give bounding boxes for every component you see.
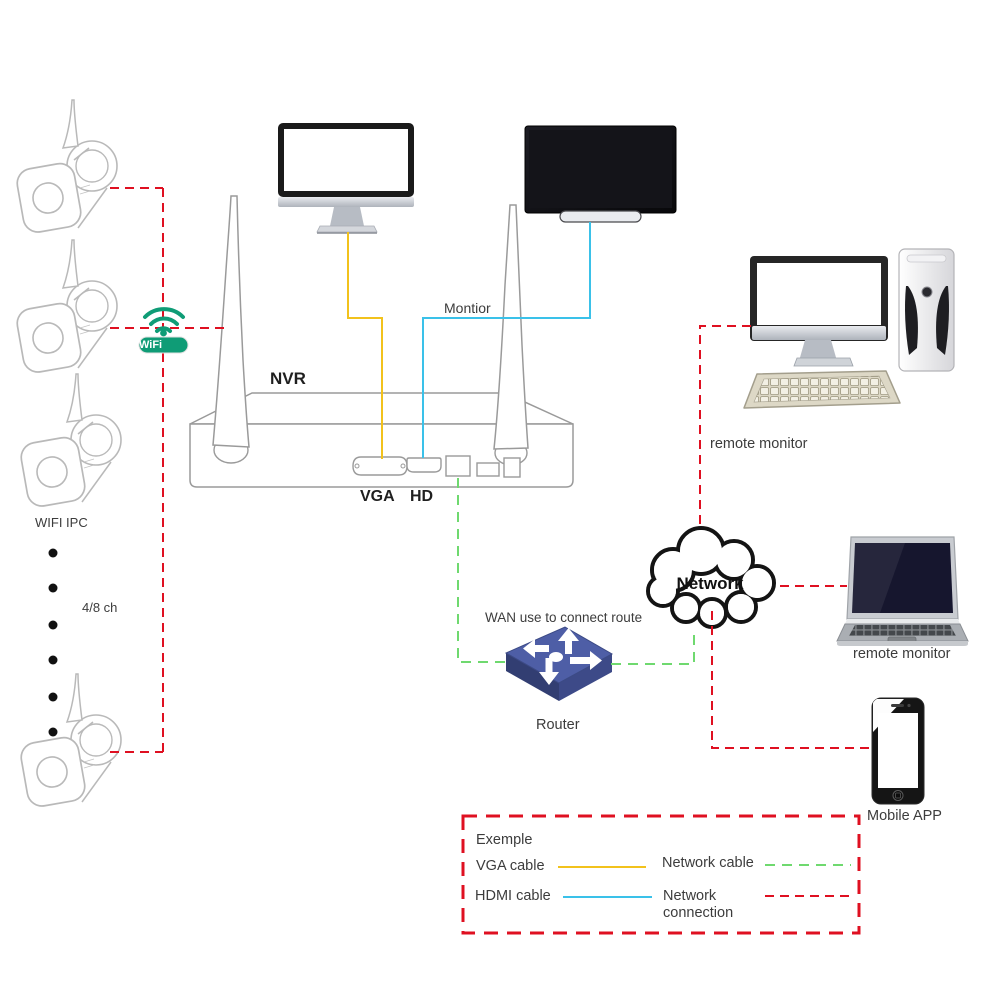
hd-port-label: HD <box>410 488 433 506</box>
remote-monitor-laptop-label: remote monitor <box>853 646 951 663</box>
network-cloud-label: Network <box>668 574 752 594</box>
mobile-app-label: Mobile APP <box>867 808 942 825</box>
channels-label: 4/8 ch <box>82 601 117 616</box>
nvr-label: NVR <box>270 369 306 389</box>
wifi-ipc-label: WIFI IPC <box>35 516 88 531</box>
router-label: Router <box>536 717 580 734</box>
legend-title: Exemple <box>476 832 532 849</box>
legend-network-cable-label: Network cable <box>662 855 754 872</box>
vga-port-label: VGA <box>360 488 395 506</box>
wifi-badge-label: WiFi <box>139 339 188 352</box>
wifi-layer <box>0 0 1000 1000</box>
monitor-cable-label: Montior <box>444 300 491 316</box>
legend-network-connection-label: Network connection <box>663 888 733 921</box>
wan-note-label: WAN use to connect route <box>485 610 642 626</box>
legend-vga-cable-label: VGA cable <box>476 858 545 875</box>
remote-monitor-pc-label: remote monitor <box>710 436 808 453</box>
legend-hdmi-cable-label: HDMI cable <box>475 888 551 905</box>
wifi-signal-icon <box>145 309 183 336</box>
diagram-canvas: WiFi NVR VGA HD Montior WIFI IPC 4/8 ch … <box>0 0 1000 1000</box>
